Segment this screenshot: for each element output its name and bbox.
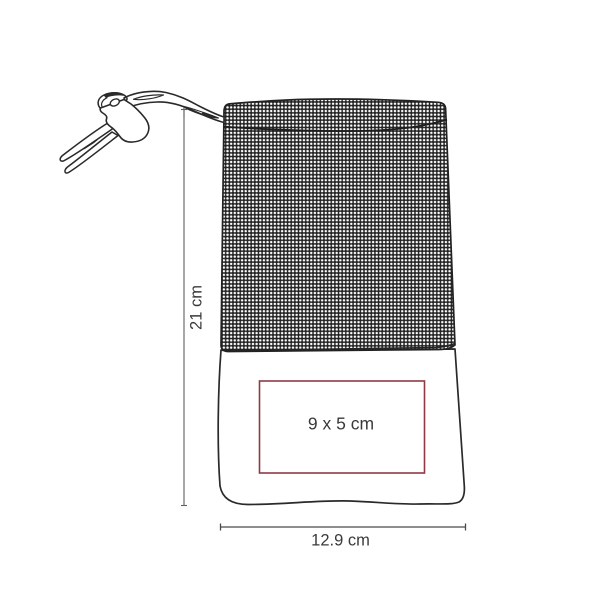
svg-text:21 cm: 21 cm: [188, 285, 206, 330]
svg-text:9 x 5 cm: 9 x 5 cm: [308, 414, 374, 434]
svg-text:12.9 cm: 12.9 cm: [311, 532, 370, 550]
